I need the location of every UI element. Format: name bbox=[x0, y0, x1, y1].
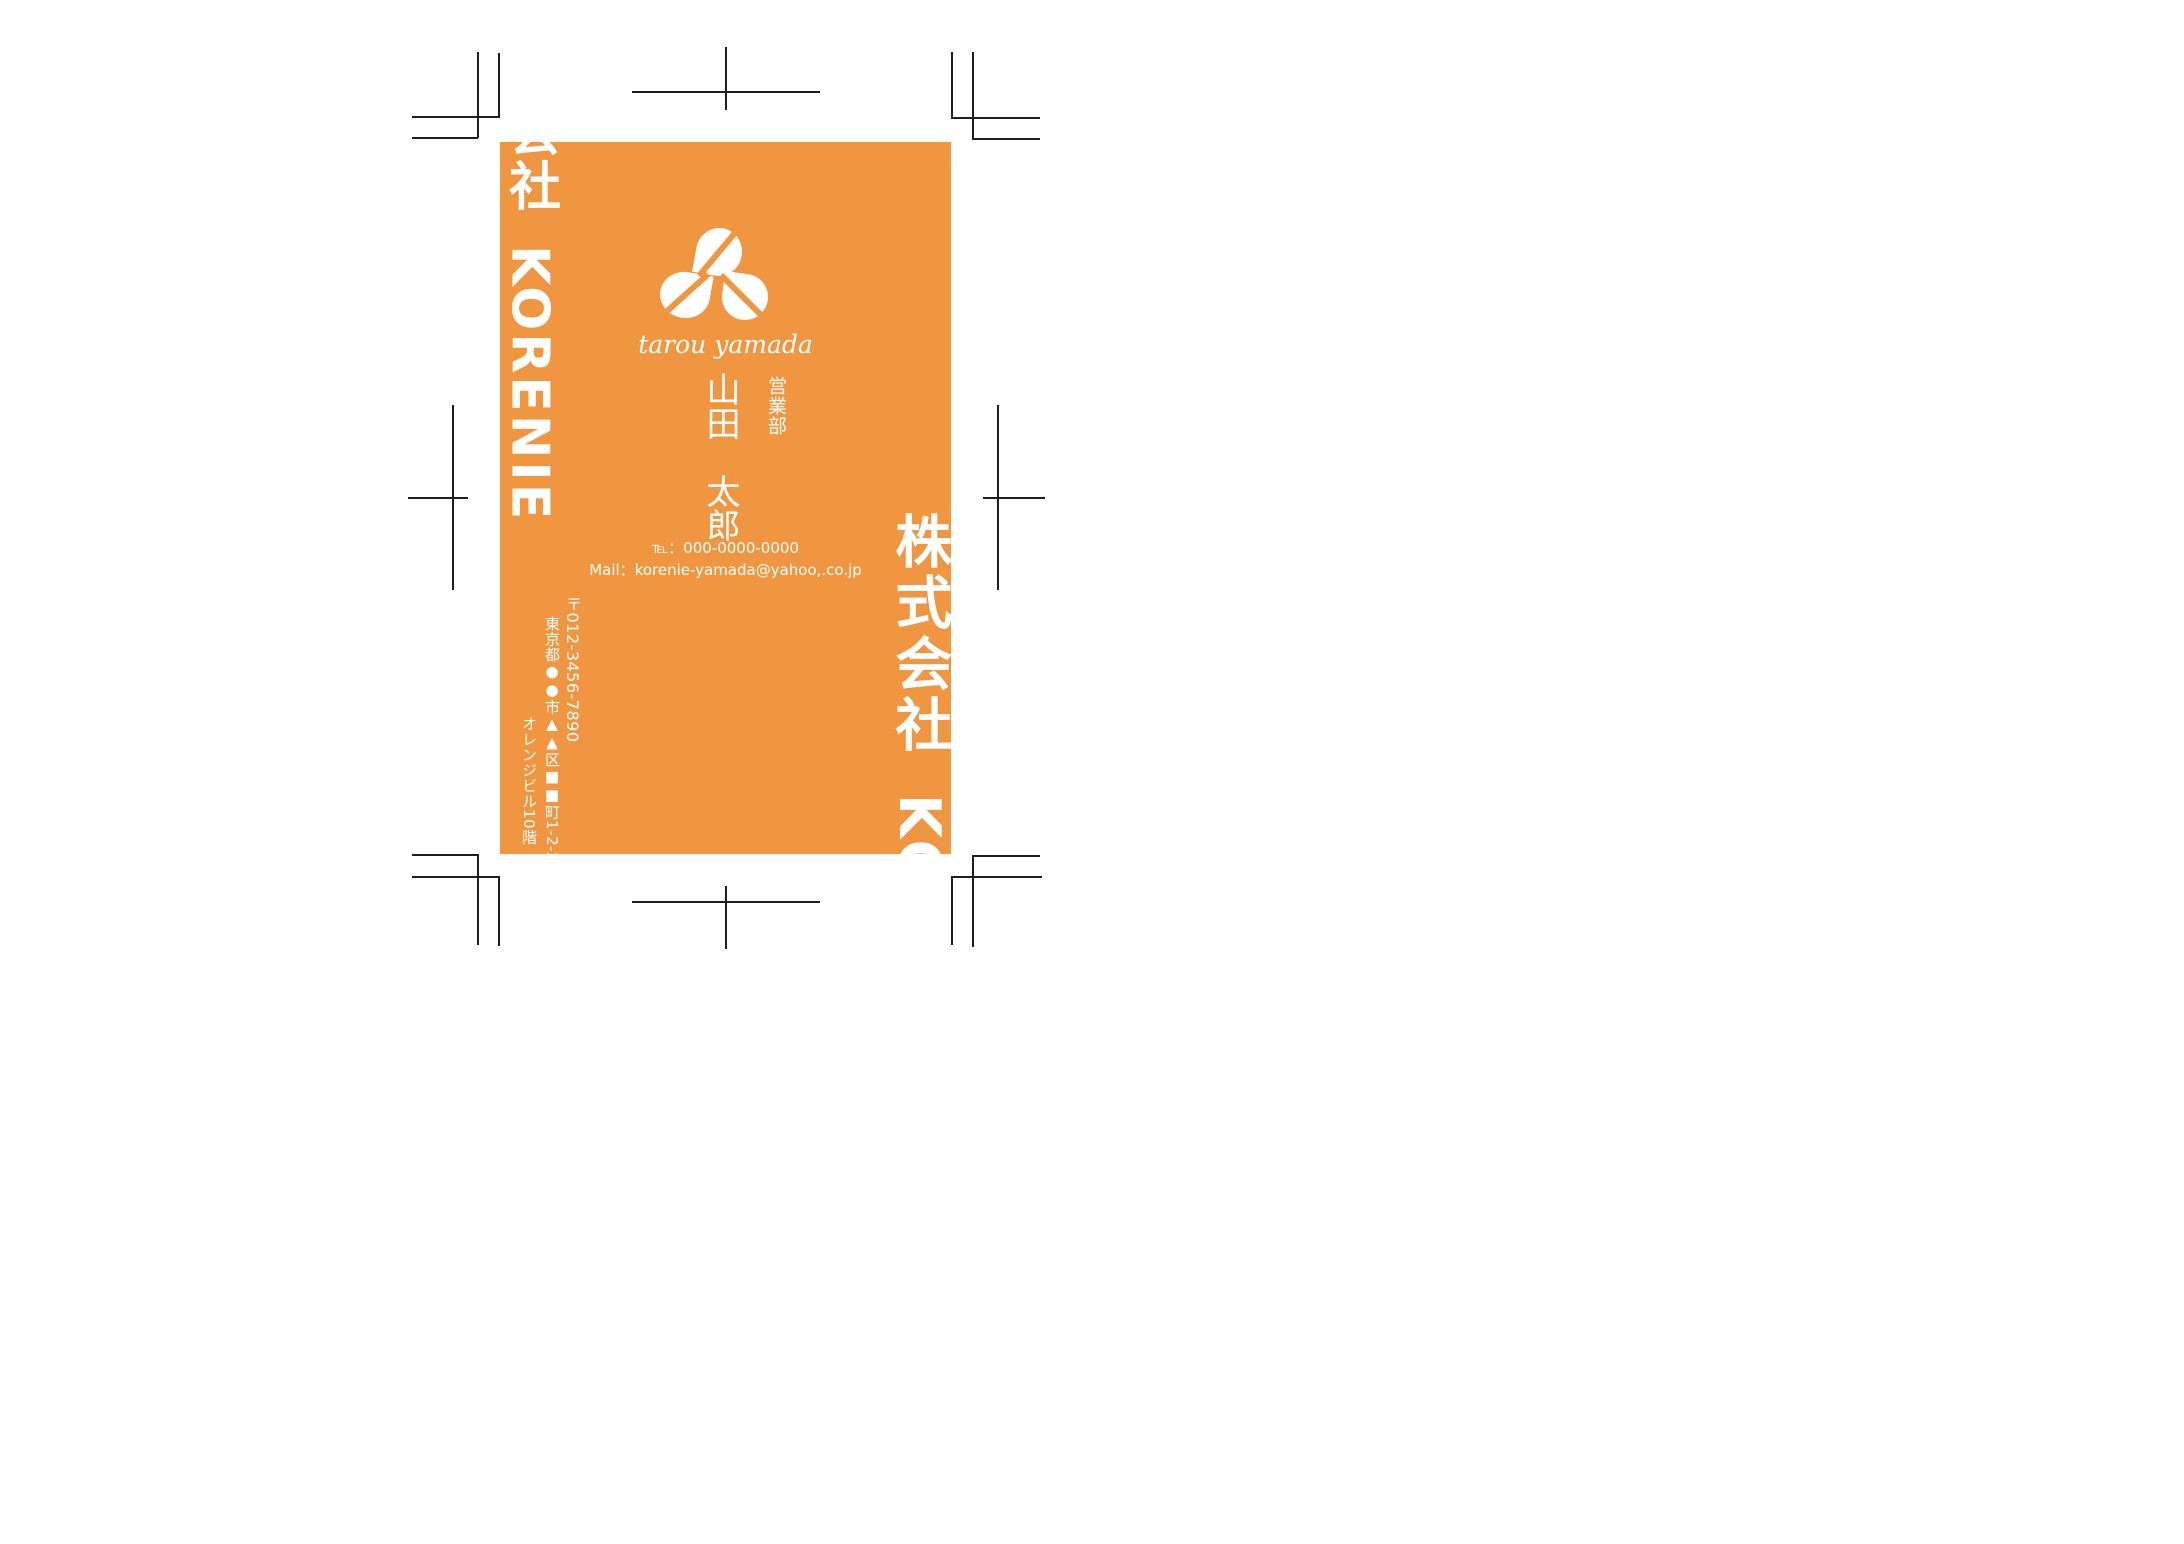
trim-line bbox=[412, 116, 500, 118]
mail-line: Mail：korenie-yamada@yahoo,.co.jp bbox=[500, 563, 951, 578]
trim-line bbox=[972, 138, 1040, 140]
trim-line bbox=[408, 497, 468, 499]
tel-value: 000-0000-0000 bbox=[683, 539, 799, 557]
trim-line bbox=[983, 497, 1045, 499]
trim-line bbox=[412, 876, 500, 878]
department: 営業部 bbox=[766, 376, 785, 436]
mail-label: Mail： bbox=[589, 561, 634, 579]
trim-line bbox=[951, 876, 953, 945]
business-card: 会社 KORENIE tarou yamada 山田 太郎 営業部 ℡：000-… bbox=[500, 142, 951, 854]
tel-label: ℡： bbox=[652, 539, 683, 557]
address-line1: 東京都●●市▲▲区■■町1-2-3 bbox=[544, 616, 559, 854]
address-postal: 〒012-3456-7890 bbox=[564, 596, 580, 743]
trim-line bbox=[972, 52, 974, 140]
trim-line bbox=[412, 854, 478, 856]
trim-line bbox=[972, 855, 1040, 857]
trim-line bbox=[972, 855, 974, 947]
tel-line: ℡：000-0000-0000 bbox=[500, 541, 951, 556]
trim-line bbox=[412, 137, 478, 139]
trim-line bbox=[951, 117, 1040, 119]
trim-line bbox=[477, 52, 479, 138]
trim-line bbox=[951, 876, 1042, 878]
trim-line bbox=[725, 886, 727, 949]
company-name-right-edge: 株式会社 KO bbox=[888, 512, 948, 854]
three-leaves-logo-icon bbox=[658, 226, 774, 328]
trim-line bbox=[498, 876, 500, 946]
address-line2: オレンジビル10階 bbox=[521, 716, 536, 845]
trim-line bbox=[951, 52, 953, 118]
trim-line bbox=[477, 854, 479, 945]
name-japanese: 山田 太郎 bbox=[703, 372, 737, 542]
name-roman: tarou yamada bbox=[500, 332, 951, 357]
mail-value: korenie-yamada@yahoo,.co.jp bbox=[635, 561, 862, 579]
trim-line bbox=[725, 47, 727, 110]
print-sheet: 会社 KORENIE tarou yamada 山田 太郎 営業部 ℡：000-… bbox=[0, 0, 2184, 1544]
trim-line bbox=[498, 53, 500, 118]
